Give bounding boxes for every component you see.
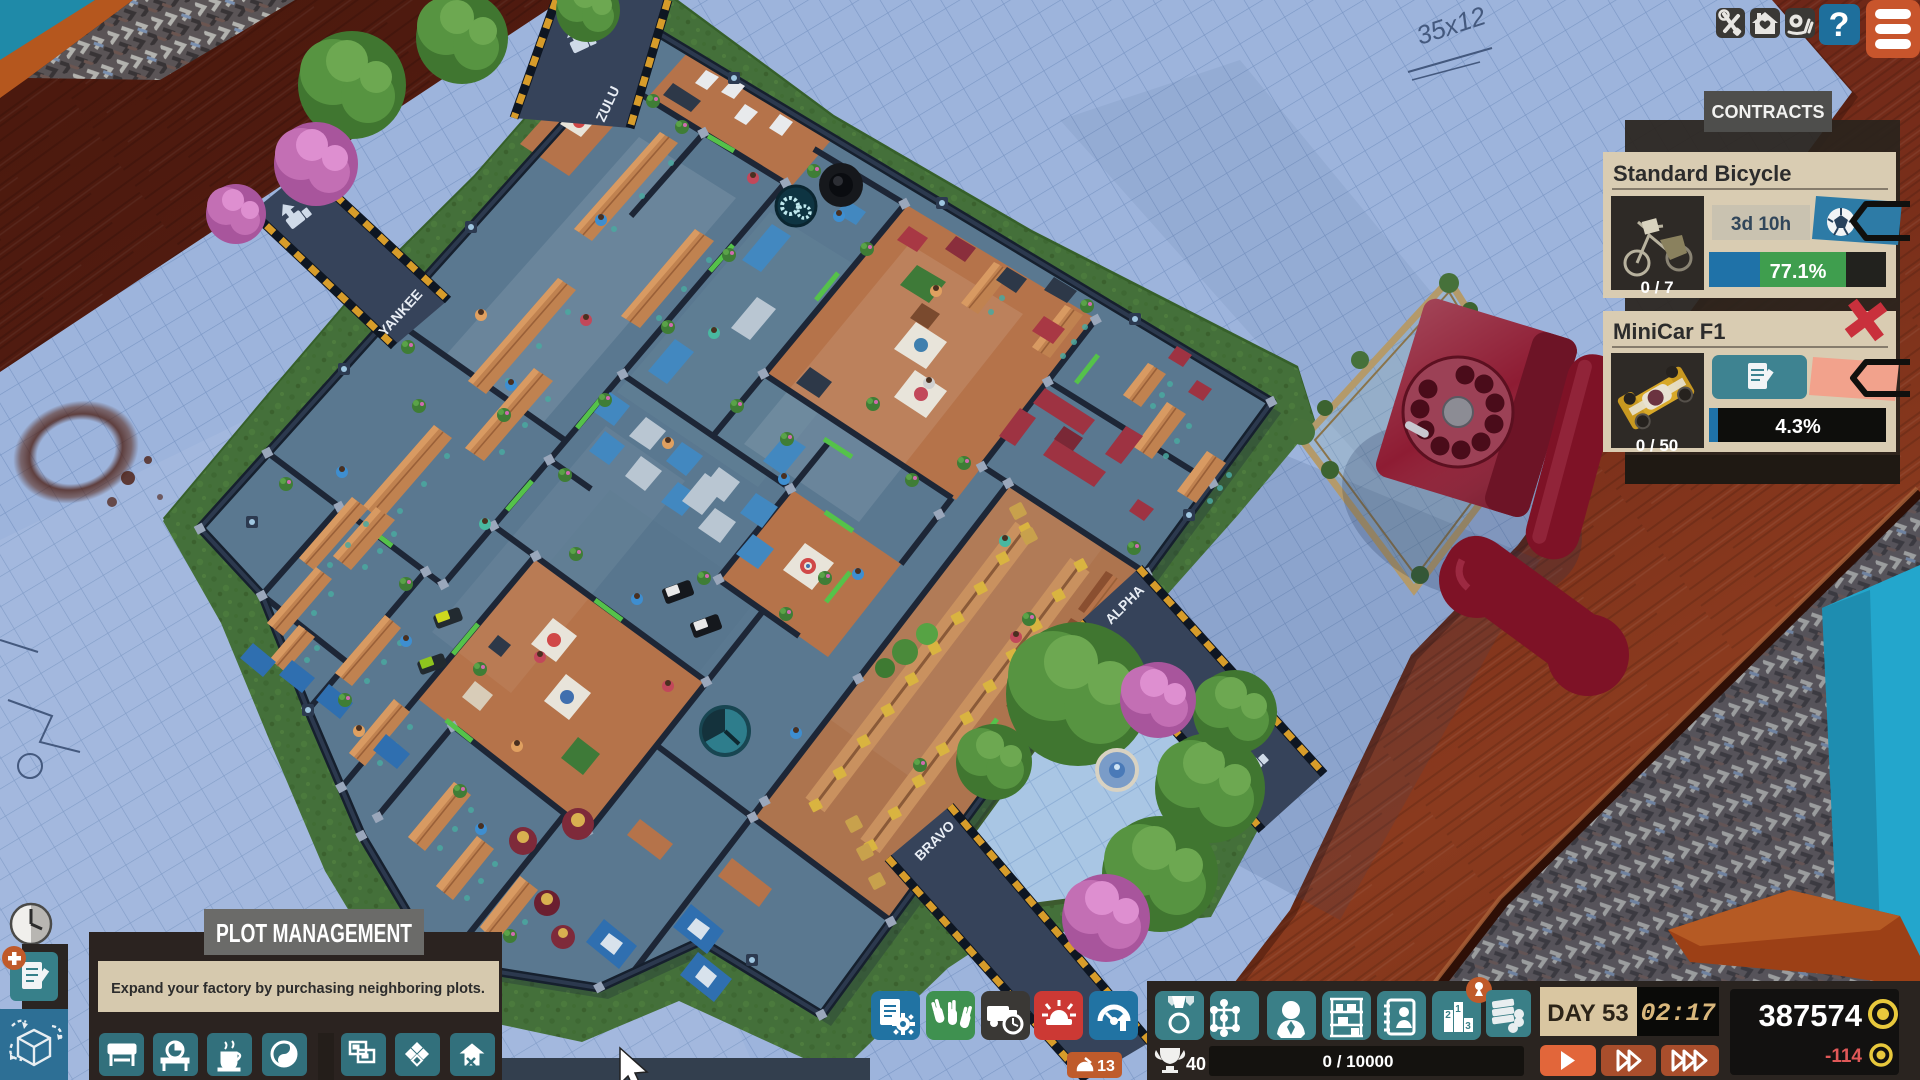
svg-text:-114: -114 [1825, 1046, 1862, 1067]
svg-text:3: 3 [1465, 1021, 1471, 1032]
svg-text:13: 13 [1097, 1058, 1115, 1075]
svg-text:0 / 10000: 0 / 10000 [1323, 1052, 1394, 1071]
svg-text:?: ? [1829, 6, 1850, 44]
svg-text:Standard Bicycle: Standard Bicycle [1613, 161, 1792, 186]
svg-text:0 / 50: 0 / 50 [1636, 436, 1679, 455]
svg-text:3d 10h: 3d 10h [1731, 214, 1791, 235]
svg-text:DAY 53: DAY 53 [1547, 1000, 1628, 1027]
svg-text:77.1%: 77.1% [1770, 261, 1827, 283]
svg-text:PLOT MANAGEMENT: PLOT MANAGEMENT [216, 918, 412, 948]
svg-text:2: 2 [1445, 1010, 1451, 1021]
svg-text:MiniCar F1: MiniCar F1 [1613, 319, 1725, 344]
svg-text:CONTRACTS: CONTRACTS [1712, 102, 1825, 122]
svg-text:02:17: 02:17 [1640, 999, 1716, 1028]
svg-text:40: 40 [1186, 1054, 1206, 1074]
svg-text:1: 1 [1455, 1004, 1461, 1015]
svg-text:4.3%: 4.3% [1775, 416, 1821, 438]
svg-text:387574: 387574 [1759, 998, 1863, 1033]
svg-text:Expand your factory by purchas: Expand your factory by purchasing neighb… [111, 981, 485, 997]
svg-text:0 / 7: 0 / 7 [1640, 278, 1673, 297]
